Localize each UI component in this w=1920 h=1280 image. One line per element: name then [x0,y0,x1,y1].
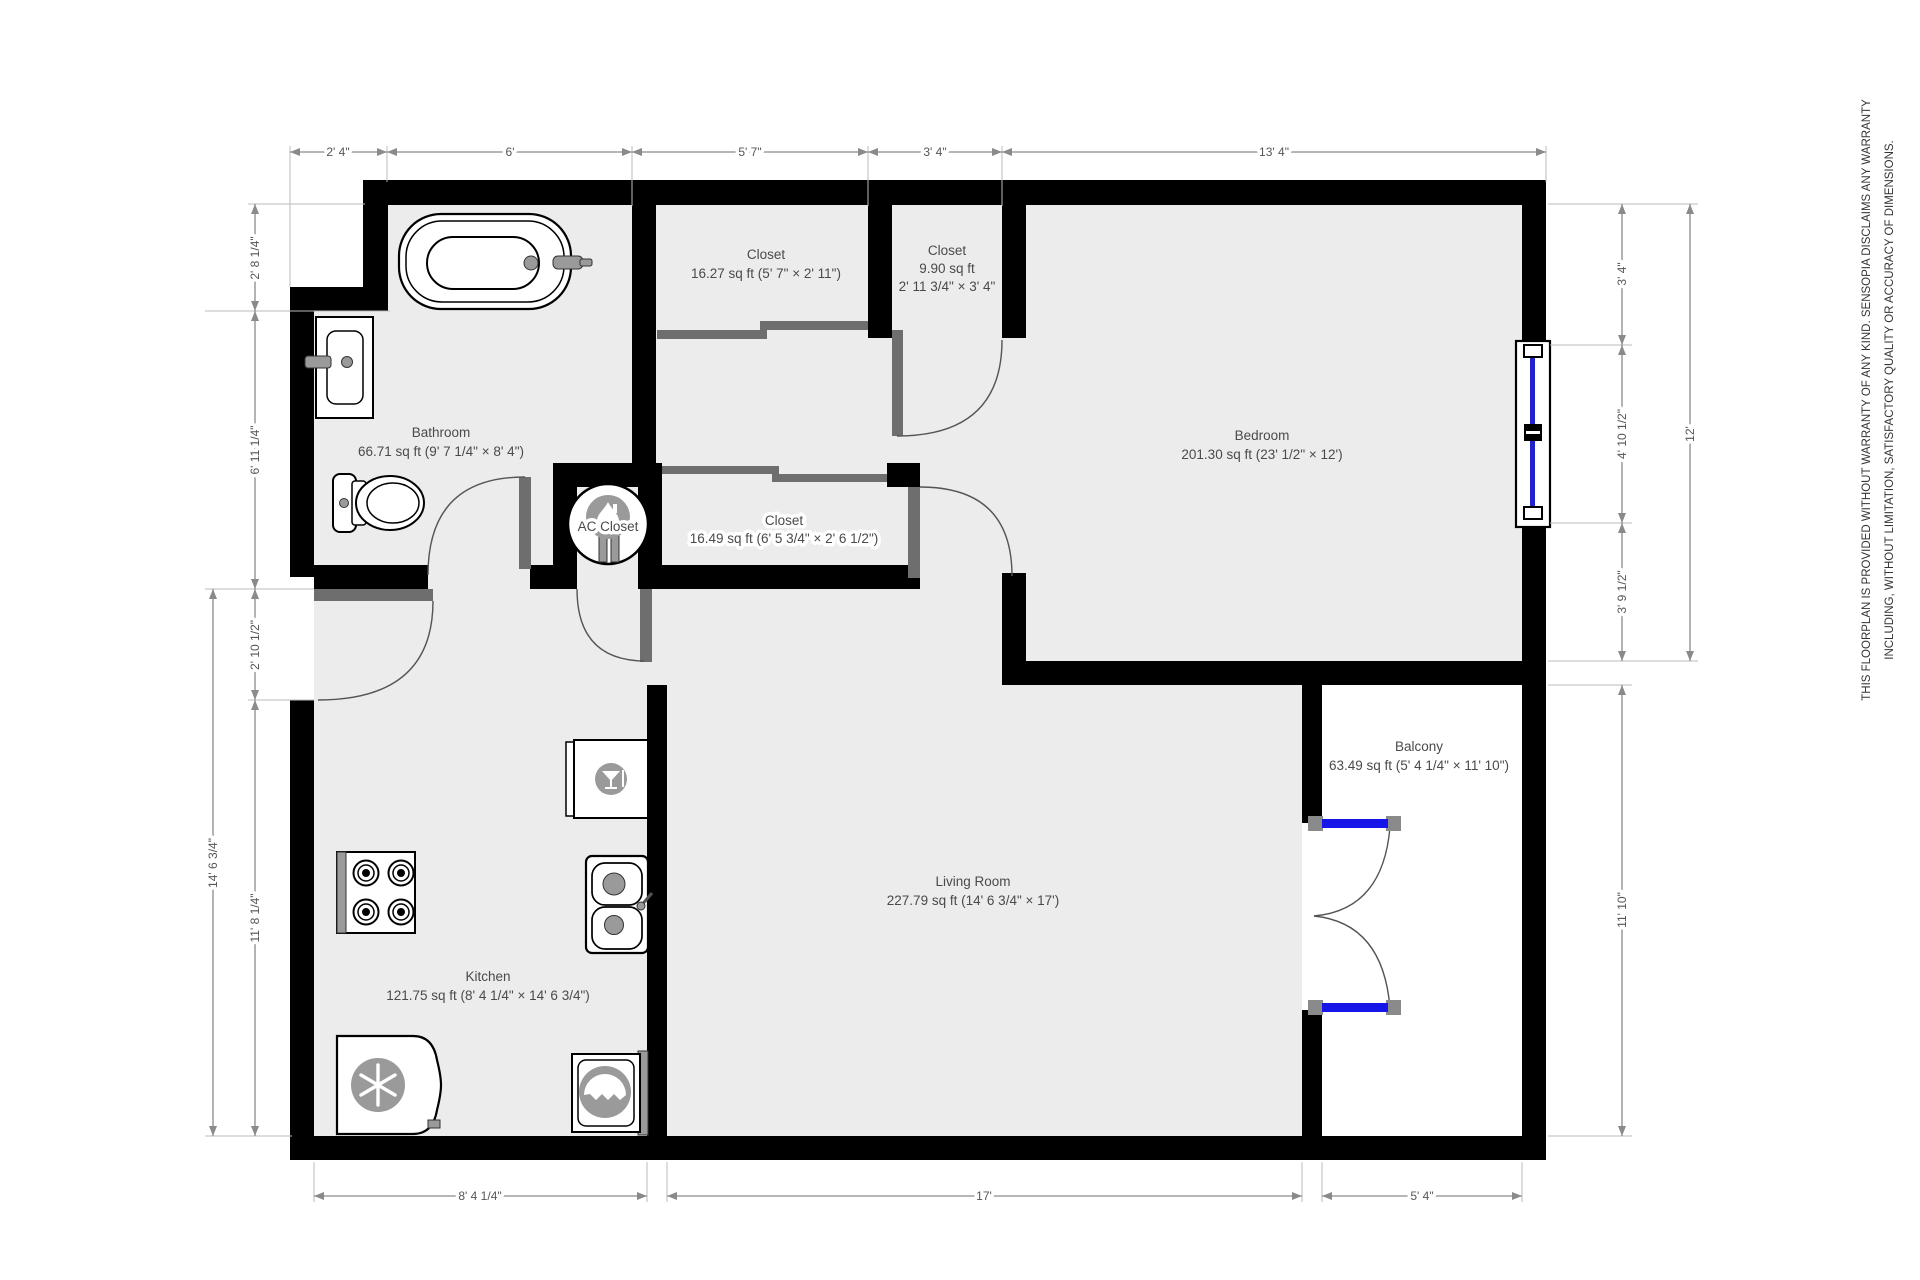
room-name: Closet [928,243,967,258]
room-name: Closet [765,513,804,528]
wine-cabinet [566,740,648,818]
room-name: Bathroom [412,425,471,440]
dim-value: 2' 10 1/2" [248,620,262,670]
dim-value: 12' [1683,426,1697,442]
dim-value: 5' 7" [738,145,761,159]
toilet [333,474,424,532]
room-area: 9.90 sq ft [919,261,975,276]
room-area: 16.49 sq ft (6' 5 3/4" × 2' 6 1/2") [690,531,878,546]
dimension-right: 3' 4" 4' 10 1/2" 3' 9 1/2" 11' 10" 12' [1548,204,1698,1136]
dim-value: 3' 9 1/2" [1615,570,1629,613]
stove [337,852,415,933]
dim-value: 6' 11 1/4" [248,425,262,474]
dim-value: 14' 6 3/4" [206,838,220,888]
disclaimer-line-2: INCLUDING, WITHOUT LIMITATION, SATISFACT… [1884,140,1896,660]
room-area: 201.30 sq ft (23' 1/2" × 12') [1181,447,1342,462]
room-area: 121.75 sq ft (8' 4 1/4" × 14' 6 3/4") [386,988,590,1003]
room-name: Kitchen [465,969,510,984]
dim-value: 17' [976,1189,992,1203]
dishwasher [572,1051,648,1135]
room-name: AC Closet [578,519,639,534]
floorplan-canvas: Bathroom 66.71 sq ft (9' 7 1/4" × 8' 4")… [0,0,1920,1280]
dim-value: 3' 4" [923,145,946,159]
dimension-bottom: 8' 4 1/4" 17' 5' 4" [314,1162,1522,1203]
room-area: 16.27 sq ft (5' 7" × 2' 11") [691,266,841,281]
room-name: Bedroom [1235,428,1290,443]
balcony-french-doors [1308,816,1401,1015]
dim-value: 8' 4 1/4" [458,1189,501,1203]
room-area: 66.71 sq ft (9' 7 1/4" × 8' 4") [358,444,524,459]
room-size: 2' 11 3/4" × 3' 4" [899,279,996,294]
dim-value: 4' 10 1/2" [1615,409,1629,459]
dim-value: 2' 8 1/4" [248,236,262,279]
dim-value: 5' 4" [1410,1189,1433,1203]
bedroom-window [1516,341,1550,527]
room-name: Living Room [935,874,1010,889]
dim-value: 3' 4" [1615,262,1629,285]
room-area: 227.79 sq ft (14' 6 3/4" × 17') [887,893,1059,908]
kitchen-sink [586,856,652,953]
dim-value: 11' 10" [1615,892,1629,928]
disclaimer-text: THIS FLOORPLAN IS PROVIDED WITHOUT WARRA… [1861,99,1896,701]
bathroom-sink [305,317,373,418]
room-name: Balcony [1395,739,1443,754]
refrigerator [337,1036,441,1134]
disclaimer-line-1: THIS FLOORPLAN IS PROVIDED WITHOUT WARRA… [1861,99,1873,701]
dim-value: 13' 4" [1259,145,1289,159]
room-label-ac-closet: AC Closet [578,519,639,534]
dim-value: 11' 8 1/4" [248,893,262,942]
dim-value: 6' [506,145,515,159]
room-name: Closet [747,247,786,262]
dim-value: 2' 4" [326,145,349,159]
room-label-balcony: Balcony 63.49 sq ft (5' 4 1/4" × 11' 10"… [1329,739,1509,773]
room-area: 63.49 sq ft (5' 4 1/4" × 11' 10") [1329,758,1509,773]
